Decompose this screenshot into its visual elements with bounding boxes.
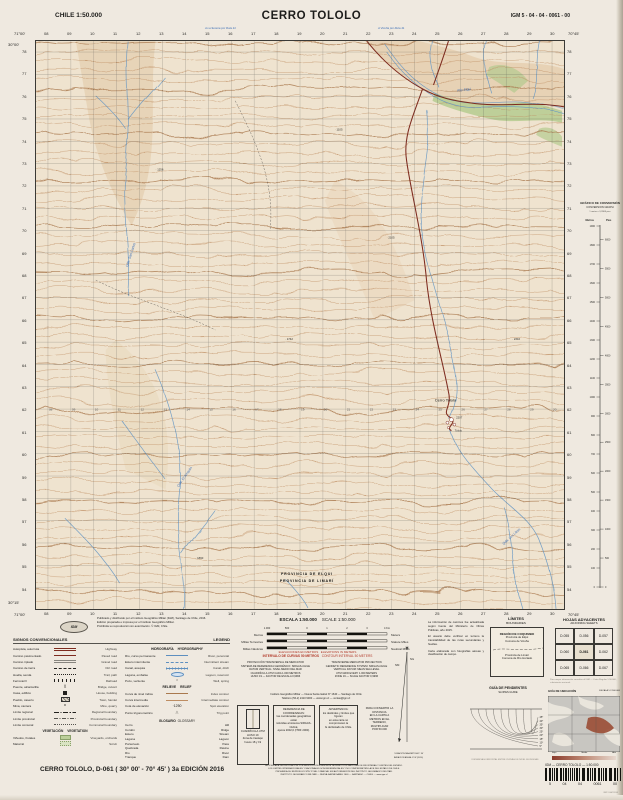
adjoining-sheets-title: HOJAS ADYACENTES ADJOINING SHEETS <box>552 617 616 626</box>
svg-text:08: 08 <box>49 408 53 412</box>
svg-text:Qda. San Carlos: Qda. San Carlos <box>125 242 137 267</box>
slopes-guide-title: GUÍA DE PENDIENTES SLOPES GUIDE <box>470 686 546 694</box>
svg-text:100: 100 <box>591 567 596 570</box>
barcode-digit: 0061 <box>594 782 602 786</box>
grid-label: 77 <box>567 71 571 76</box>
svg-text:· 2105: · 2105 <box>387 235 395 239</box>
veg2-symbol <box>60 741 71 746</box>
grid-label: 78 <box>567 49 571 54</box>
grid-label: 24 <box>412 611 416 616</box>
map-artwork: 0809101112131415161718192021222324252627… <box>36 41 564 609</box>
grid-label: 29 <box>527 31 531 36</box>
grid-label: 69 <box>567 251 571 256</box>
svg-text:5°: 5° <box>540 745 542 748</box>
publisher-note: Publicado y distribuido por el Instituto… <box>97 617 209 628</box>
canal-symbol <box>166 667 188 670</box>
barcode-digit: 5 <box>549 782 551 786</box>
riverd-symbol <box>166 662 188 663</box>
rail-symbol <box>54 679 76 682</box>
svg-text:45°: 45° <box>540 716 544 719</box>
svg-text:23: 23 <box>393 408 397 412</box>
note-box: ADVERTENCIA:los deslindes y límites que … <box>319 705 358 765</box>
grid-label: 62 <box>567 407 571 412</box>
grid-label: 14 <box>182 31 186 36</box>
svg-text:15°: 15° <box>540 738 544 741</box>
svg-text:DECLINACIÓN MAGNÉTICA 2° 30' E: DECLINACIÓN MAGNÉTICA 2° 30' E <box>394 752 424 755</box>
density-strip-label: Baja <box>552 752 556 755</box>
grid-label: 23 <box>389 611 393 616</box>
grid-label: 70 <box>22 228 26 233</box>
grid-label: 68 <box>22 273 26 278</box>
grid-label: 67 <box>22 295 26 300</box>
svg-text:20: 20 <box>324 408 328 412</box>
svg-text:19: 19 <box>301 408 305 412</box>
dash-symbol <box>54 668 76 669</box>
barcode <box>545 768 621 781</box>
lake-symbol <box>171 672 184 677</box>
grid-label: 72 <box>567 183 571 188</box>
utm-northing-labels-left: 7877767574737271706968676665646362616059… <box>22 40 33 610</box>
grid-label: 20 <box>320 31 324 36</box>
grid-label: 68 <box>567 273 571 278</box>
grid-label: 30 <box>550 31 554 36</box>
svg-text:Millas Terrestres: Millas Terrestres <box>241 640 263 644</box>
svg-text:GRÁFICO DE CONVERSIÓN: GRÁFICO DE CONVERSIÓN <box>580 200 620 205</box>
grid-label: 22 <box>366 611 370 616</box>
legend-title: SIGNOS CONVENCIONALES <box>13 637 67 642</box>
veg-symbol <box>60 735 71 740</box>
svg-text:0: 0 <box>594 586 596 589</box>
conversion-graph: GRÁFICO DE CONVERSIÓNCONVERSION GRAPH1 m… <box>578 198 623 621</box>
grid-label: 17 <box>251 611 255 616</box>
adjoining-sheet-cell: D-060 <box>555 644 574 660</box>
svg-text:500: 500 <box>605 557 610 560</box>
grid-label: 67 <box>567 295 571 300</box>
grid-label: 15 <box>205 31 209 36</box>
svg-text:Qda. El Arrayán: Qda. El Arrayán <box>176 466 193 488</box>
grid-label: 56 <box>567 542 571 547</box>
grid-label: 21 <box>343 31 347 36</box>
adjoining-sheet-cell: D-057 <box>594 628 613 644</box>
adjoining-sheet-cell: D-061 <box>574 644 593 660</box>
grid-label: 76 <box>567 94 571 99</box>
svg-text:Pies: Pies <box>606 218 612 222</box>
grid-label: 75 <box>567 116 571 121</box>
adjoining-sheet-cell: D-062 <box>594 644 613 660</box>
country-and-scale: CHILE 1:50.000 <box>55 12 102 20</box>
svg-text:Tololo: Tololo <box>455 429 463 433</box>
svg-text:2500: 2500 <box>605 441 611 444</box>
svg-text:2: 2 <box>346 626 348 630</box>
grid-label: 56 <box>22 542 26 547</box>
grid-label: 18 <box>274 31 278 36</box>
glossary: GLOSARIO GLOSSARY CerroHillCordónRidgeEs… <box>125 719 229 760</box>
grid-label: 62 <box>22 407 26 412</box>
cont-symbol <box>166 693 188 694</box>
svg-text:1800: 1800 <box>590 244 596 247</box>
svg-text:1700: 1700 <box>590 263 596 266</box>
grid-label: 12 <box>136 31 140 36</box>
note-box: REFERENCIA DE COORDENADAS:las coordenada… <box>273 705 316 765</box>
svg-text:24: 24 <box>416 408 420 412</box>
svg-text:1400: 1400 <box>590 320 596 323</box>
igm-logo-text: IGM <box>71 625 78 629</box>
grid-label: 20 <box>320 611 324 616</box>
grid-label: 59 <box>22 475 26 480</box>
glossary-pair: TranqueDam <box>125 755 229 760</box>
grid-label: 74 <box>567 139 571 144</box>
grid-label: 58 <box>22 497 26 502</box>
svg-text:· 1256: · 1256 <box>156 168 164 172</box>
grid-label: 25 <box>435 31 439 36</box>
legend-column-1: Autopista, autorrutaHighwayCamino pavime… <box>13 646 117 760</box>
svg-text:· 2310: · 2310 <box>512 337 520 341</box>
svg-text:1200: 1200 <box>590 358 596 361</box>
grid-label: 61 <box>567 430 571 435</box>
dots-symbol <box>54 674 76 675</box>
note-box: PARA CONVERTIR LA DISTANCIAEN LA CARTA A… <box>362 705 397 765</box>
grid-label: 75 <box>22 116 26 121</box>
grid-label: 28 <box>504 31 508 36</box>
blim2-symbol <box>54 718 76 719</box>
grid-label: 10 <box>90 31 94 36</box>
adjoining-sheet-cell: D-056 <box>574 628 593 644</box>
road-info-notes: La información de caminos fue actualizad… <box>428 621 484 660</box>
grid-label: 10 <box>90 611 94 616</box>
grid-label: 61 <box>22 430 26 435</box>
grid-label: 60 <box>22 452 26 457</box>
legend: SIGNOS CONVENCIONALES LEGEND Autopista, … <box>13 637 230 760</box>
barcode-digit: 04 <box>563 782 567 786</box>
svg-text:Meters: Meters <box>391 633 401 637</box>
svg-text:· 1105: · 1105 <box>335 128 343 132</box>
grid-label: 71 <box>567 206 571 211</box>
grid-label: 69 <box>22 251 26 256</box>
svg-text:· 1742: · 1742 <box>285 337 293 341</box>
svg-text:20°: 20° <box>540 734 544 737</box>
svg-text:25°: 25° <box>540 731 544 734</box>
svg-text:15: 15 <box>209 408 213 412</box>
grid-label: 54 <box>22 587 26 592</box>
svg-text:1100: 1100 <box>590 377 596 380</box>
svg-text:· 2207: · 2207 <box>454 416 462 420</box>
legend-item: MatorralScrub <box>13 741 117 747</box>
corner-lat-bottom: 30°15' <box>8 600 19 605</box>
svg-text:13: 13 <box>164 408 168 412</box>
svg-text:3: 3 <box>366 626 368 630</box>
road2-symbol <box>54 648 76 651</box>
svg-text:40°: 40° <box>540 720 544 723</box>
svg-text:21: 21 <box>347 408 351 412</box>
grid-label: 74 <box>22 139 26 144</box>
barcode-digit: 04 <box>578 782 582 786</box>
svg-text:1000: 1000 <box>605 528 611 531</box>
svg-text:1600: 1600 <box>590 282 596 285</box>
legend-title-en: LEGEND <box>213 637 230 642</box>
svg-text:10°: 10° <box>540 741 544 744</box>
grid-label: 09 <box>67 31 71 36</box>
svg-text:300: 300 <box>591 529 596 532</box>
corner-lon-bl: 71°00' <box>14 612 25 617</box>
grid-label: 76 <box>22 94 26 99</box>
barcode-label: IGM — CERRO TOLOLO — 1:50.000 <box>545 763 621 767</box>
svg-text:PROVINCIA DE ELQUI: PROVINCIA DE ELQUI <box>281 572 333 576</box>
svg-text:1.000: 1.000 <box>264 626 271 630</box>
adjoining-sheet-cell: D-067 <box>594 660 613 676</box>
road-symbol <box>54 655 76 656</box>
grid-label: 72 <box>22 183 26 188</box>
svg-text:200: 200 <box>591 548 596 551</box>
grid-label: 27 <box>481 611 485 616</box>
legend-column-2: HIDROGRAFÍAHYDROGRAPHYRío, curso permane… <box>125 646 229 760</box>
svg-text:CONVERSION GRAPH: CONVERSION GRAPH <box>586 205 614 209</box>
page-edge-bottom <box>0 795 623 800</box>
scale-title: ESCALA 1:50.000 SCALE 1:50.000 <box>205 617 430 623</box>
svg-text:900: 900 <box>591 415 596 418</box>
svg-text:0: 0 <box>605 586 607 589</box>
grid-label: 26 <box>458 611 462 616</box>
svg-text:600: 600 <box>591 472 596 475</box>
svg-text:VARIACIÓN ANUAL 8' W (2016): VARIACIÓN ANUAL 8' W (2016) <box>394 756 423 759</box>
footer-sheet-name: CERRO TOLOLO, D-061 ( 30° 00' - 70° 45' … <box>40 766 224 774</box>
slopes-guide: 5°10°15°20°25°30°35°40°45° <box>466 697 546 764</box>
svg-text:0: 0 <box>306 626 308 630</box>
svg-text:NM: NM <box>395 663 400 667</box>
svg-text:1500: 1500 <box>590 301 596 304</box>
svg-text:09: 09 <box>72 408 76 412</box>
svg-text:3000: 3000 <box>605 412 611 415</box>
svg-text:4000: 4000 <box>605 354 611 357</box>
location-guide-map <box>548 696 620 757</box>
scanned-topo-map-sheet: CHILE 1:50.000 CERRO TOLOLO IGM 5 - 04 -… <box>0 0 623 800</box>
limits-title: LÍMITES BOUNDARIES <box>486 616 546 625</box>
bldg-symbol <box>63 691 67 695</box>
svg-text:1 metro = 3,2808 pies: 1 metro = 3,2808 pies <box>589 210 611 213</box>
svg-text:18: 18 <box>278 408 282 412</box>
grid-label: 55 <box>22 564 26 569</box>
igm-logo: IGM <box>60 621 88 633</box>
corner-lat-top: 30°00' <box>8 42 19 47</box>
svg-text:500: 500 <box>591 491 596 494</box>
grid-label: 19 <box>297 611 301 616</box>
svg-text:11: 11 <box>118 408 121 412</box>
grid-label: 57 <box>22 519 26 524</box>
svg-text:30°: 30° <box>540 727 544 730</box>
grid-label: 73 <box>22 161 26 166</box>
blim3-symbol <box>54 724 76 725</box>
grid-label: 71 <box>22 206 26 211</box>
projection-notes: PROYECCIÓN TRANSVERSAL DE MERCATORSISTEM… <box>237 661 395 679</box>
grid-label: 77 <box>22 71 26 76</box>
grid-label: 30 <box>550 611 554 616</box>
svg-text:1500: 1500 <box>605 499 611 502</box>
note-box: CUADRÍCULA UTMHUSO 19Zona de traslapohus… <box>237 705 269 765</box>
svg-text:17: 17 <box>255 408 259 412</box>
svg-text:3500: 3500 <box>605 383 611 386</box>
adjoining-sheet-cell: D-065 <box>555 660 574 676</box>
town-symbol <box>61 697 70 702</box>
grid-label: 60 <box>567 452 571 457</box>
grid-label: 73 <box>567 161 571 166</box>
svg-text:30: 30 <box>553 408 557 412</box>
barcode-digit: 00 <box>613 782 617 786</box>
svg-text:27: 27 <box>484 408 488 412</box>
grid-label: 64 <box>22 363 26 368</box>
grid-label: 59 <box>567 475 571 480</box>
svg-text:6000: 6000 <box>605 239 611 242</box>
grid-label: 08 <box>44 611 48 616</box>
grid-label: 58 <box>567 497 571 502</box>
svg-text:25: 25 <box>438 408 442 412</box>
svg-text:22: 22 <box>370 408 374 412</box>
grid-label: 27 <box>481 31 485 36</box>
location-guide-title: GUÍA DE UBICACIÓN ESCALA 1:2.500.000 <box>548 690 620 694</box>
adjoining-sheets-note: Para mayor información consultar al IGM … <box>550 679 620 685</box>
grid-label: 08 <box>44 31 48 36</box>
svg-text:Metros: Metros <box>585 218 594 222</box>
roadg-symbol <box>54 660 76 663</box>
grid-label: 16 <box>228 611 232 616</box>
grid-label: 57 <box>567 519 571 524</box>
svg-text:26: 26 <box>461 408 465 412</box>
grid-label: 24 <box>412 31 416 36</box>
grid-label: 16 <box>228 31 232 36</box>
svg-text:14: 14 <box>186 408 190 412</box>
svg-text:4500: 4500 <box>605 325 611 328</box>
svg-text:10: 10 <box>95 408 99 412</box>
map-canvas: 0809101112131415161718192021222324252627… <box>35 40 565 610</box>
blim-symbol <box>54 712 76 713</box>
svg-text:· 1890: · 1890 <box>195 556 203 560</box>
grid-label: 65 <box>567 340 571 345</box>
legend-item: Punto trigonométrico△Trig point <box>125 710 229 716</box>
svg-text:35°: 35° <box>540 723 544 726</box>
svg-text:1300: 1300 <box>590 339 596 342</box>
svg-text:1900: 1900 <box>590 225 596 228</box>
svg-text:29: 29 <box>530 408 534 412</box>
density-strip-labels: BajaMediaAlta <box>552 752 616 755</box>
slopes-guide-caption: DISTANCIA HORIZONTAL ENTRE CURVAS DE NIV… <box>460 759 550 762</box>
svg-text:12: 12 <box>141 408 145 412</box>
grid-label: 26 <box>458 31 462 36</box>
grid-label: 66 <box>22 318 26 323</box>
grid-label: 66 <box>567 318 571 323</box>
grid-label: 65 <box>22 340 26 345</box>
grid-label: 55 <box>567 564 571 569</box>
svg-text:5500: 5500 <box>605 267 611 270</box>
svg-text:Cerro Tololo: Cerro Tololo <box>435 398 457 403</box>
grid-label: 09 <box>67 611 71 616</box>
grid-label: 23 <box>389 31 393 36</box>
svg-text:4 Km: 4 Km <box>384 626 390 630</box>
svg-text:5000: 5000 <box>605 296 611 299</box>
grid-label: 64 <box>567 363 571 368</box>
svg-text:800: 800 <box>591 434 596 437</box>
svg-text:NG: NG <box>410 657 414 661</box>
adjoining-sheet-cell: D-055 <box>555 628 574 644</box>
grid-label: 25 <box>435 611 439 616</box>
density-strip-label: Media <box>581 752 587 755</box>
corner-lon-tr: 70°45' <box>568 31 579 36</box>
svg-text:500: 500 <box>285 626 290 630</box>
igm-address: Instituto Geográfico Militar — Nueva San… <box>237 693 395 700</box>
imprint-note: IMP. IGM 2016 <box>560 792 618 795</box>
svg-text:Metros: Metros <box>254 633 264 637</box>
limits-box: REGIÓN DE COQUIMBO Provincia de ElquiCom… <box>490 627 544 677</box>
utm-easting-labels-top: 0809101112131415161718192021222324252627… <box>35 31 565 37</box>
barcode-digits: 50404006100 <box>549 782 617 786</box>
svg-text:1: 1 <box>326 626 328 630</box>
grid-label: 22 <box>366 31 370 36</box>
sheet-title: CERRO TOLOLO <box>200 10 423 23</box>
grid-label: 17 <box>251 31 255 36</box>
grid-label: 18 <box>274 611 278 616</box>
svg-text:✶: ✶ <box>404 645 409 652</box>
density-strip-label: Alta <box>612 752 616 755</box>
grid-label: 13 <box>159 31 163 36</box>
svg-text:700: 700 <box>591 453 596 456</box>
svg-text:2000: 2000 <box>605 470 611 473</box>
utm-northing-labels-right: 7877767574737271706968676665646362616059… <box>567 40 578 610</box>
cont2-symbol <box>166 700 188 701</box>
svg-text:28: 28 <box>507 408 511 412</box>
svg-text:16: 16 <box>232 408 236 412</box>
grid-label: 19 <box>297 31 301 36</box>
grid-label: 63 <box>22 385 26 390</box>
marginal-notes: CUADRÍCULA UTMHUSO 19Zona de traslapohus… <box>237 705 397 765</box>
adjoining-sheets-grid: D-055D-056D-057D-060D-061D-062D-065D-066… <box>555 628 613 676</box>
corner-lon-tl: 71°00' <box>14 31 25 36</box>
svg-text:1000: 1000 <box>590 396 596 399</box>
adjoining-sheet-cell: D-066 <box>574 660 593 676</box>
grid-label: 21 <box>343 611 347 616</box>
svg-text:400: 400 <box>591 510 596 513</box>
grid-label: 54 <box>567 587 571 592</box>
footer-legal-text: AUTORIZADA LA CIRCULACIÓN POR RESOLUCIÓN… <box>228 765 440 776</box>
river-symbol <box>166 655 188 656</box>
svg-text:PROVINCIA DE LIMARÍ: PROVINCIA DE LIMARÍ <box>280 578 334 583</box>
sheet-code: IGM 5 - 04 - 04 - 0061 - 00 <box>470 13 570 20</box>
density-strip <box>552 756 616 760</box>
grid-label: 63 <box>567 385 571 390</box>
grid-label: 11 <box>113 31 117 36</box>
declination-diagram: ✶NGNMDECLINACIÓN MAGNÉTICA 2° 30' EVARIA… <box>394 642 424 775</box>
grid-label: 78 <box>22 49 26 54</box>
grid-label: 70 <box>567 228 571 233</box>
